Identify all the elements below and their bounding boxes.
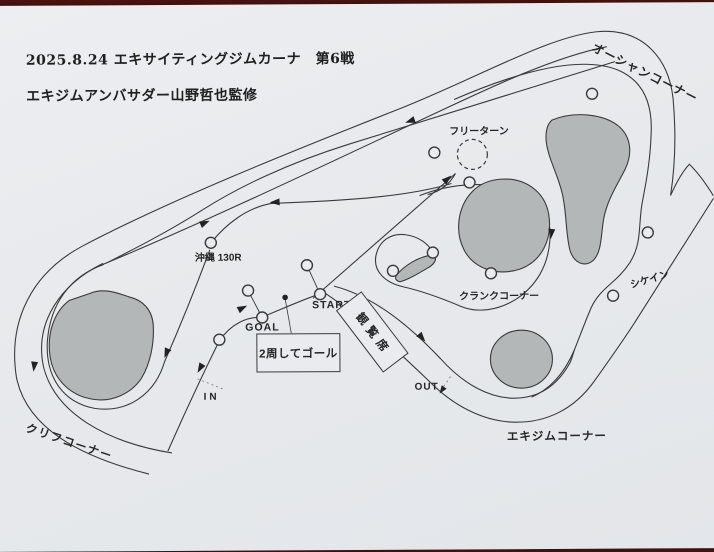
paper-sheet: 2025.8.24 エキサイティングジムカーナ 第6戦 エキジムアンバサダー山野… — [0, 2, 714, 552]
label-out: OUT — [415, 382, 439, 393]
label-free-turn: フリーターン — [449, 122, 509, 137]
pylon — [301, 260, 312, 271]
cliff-island — [49, 291, 154, 401]
line-down-130r — [164, 250, 211, 362]
direction-arrow — [199, 218, 211, 228]
label-goal: GOAL — [245, 321, 279, 333]
label-crank-corner: クランクコーナー — [459, 287, 539, 302]
pylon — [429, 147, 440, 158]
free-turn-circle — [457, 139, 487, 169]
note-anchor-dot — [282, 295, 288, 301]
label-okinawa-130r: 沖縄 130R — [195, 249, 242, 264]
direction-arrow — [30, 361, 38, 372]
direction-arrow — [269, 198, 279, 206]
pylon — [587, 88, 598, 99]
pylon — [243, 285, 254, 296]
pylon — [205, 237, 216, 248]
pylon — [315, 289, 326, 300]
event-title: 2025.8.24 エキサイティングジムカーナ 第6戦 — [26, 48, 355, 70]
line-from-free-turn — [212, 184, 452, 242]
pylon — [214, 334, 225, 345]
pylon — [464, 177, 475, 188]
direction-arrow — [237, 302, 249, 313]
crank-crescent-island — [396, 255, 436, 282]
pylon — [485, 268, 496, 279]
pylon — [608, 290, 619, 301]
label-exigym-corner: エキジムコーナー — [507, 428, 607, 445]
outer-boundary-notch — [670, 164, 713, 196]
label-in: IN — [204, 392, 220, 403]
direction-arrow — [416, 332, 428, 344]
ocean-island — [546, 114, 630, 264]
pylon — [642, 227, 653, 238]
in-dotted-line — [198, 379, 225, 390]
course-map: 2025.8.24 エキサイティングジムカーナ 第6戦 エキジムアンバサダー山野… — [0, 0, 714, 538]
supervisor-title: エキジムアンバサダー山野哲也監修 — [26, 85, 258, 106]
pylon — [427, 247, 438, 258]
lap-note-text: 2周してゴール — [259, 345, 338, 361]
pylon — [387, 265, 398, 276]
crank-island — [458, 179, 549, 272]
lap-note-box: 2周してゴール — [256, 333, 340, 372]
note-pointer-line — [285, 298, 291, 333]
exigym-island — [490, 330, 552, 388]
